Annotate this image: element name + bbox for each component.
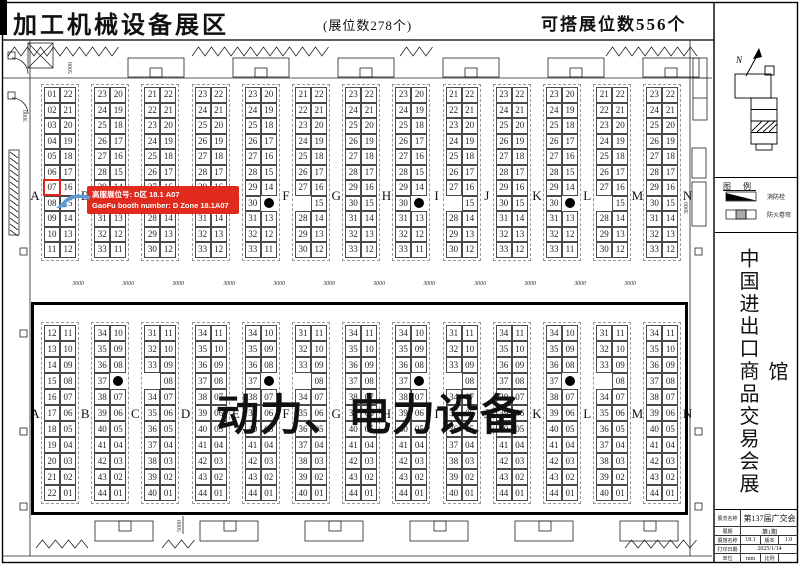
booth-cell[interactable]: 04 xyxy=(44,134,60,150)
booth-cell[interactable]: 11 xyxy=(44,242,60,258)
booth-cell[interactable]: 31 xyxy=(446,325,462,341)
booth-cell[interactable]: 37 xyxy=(596,437,612,453)
booth-cell[interactable]: 13 xyxy=(311,227,327,243)
booth-cell[interactable]: 43 xyxy=(646,469,662,485)
booth-cell[interactable]: 07 xyxy=(612,389,628,405)
booth-cell[interactable]: 36 xyxy=(596,421,612,437)
booth-cell[interactable]: 05 xyxy=(160,421,176,437)
booth-cell[interactable]: 35 xyxy=(395,341,411,357)
booth-cell[interactable]: 03 xyxy=(411,453,427,469)
booth-cell[interactable]: 02 xyxy=(44,103,60,119)
booth-cell[interactable]: 19 xyxy=(612,134,628,150)
booth-cell[interactable]: 44 xyxy=(195,485,211,501)
booth-cell[interactable]: 31 xyxy=(245,211,261,227)
booth-cell[interactable]: 23 xyxy=(195,87,211,103)
booth-cell[interactable]: 12 xyxy=(261,227,277,243)
booth-cell[interactable]: 16 xyxy=(44,389,60,405)
booth-cell[interactable]: 11 xyxy=(512,325,528,341)
booth-cell[interactable]: 19 xyxy=(211,134,227,150)
booth-cell[interactable]: 14 xyxy=(44,357,60,373)
booth-cell[interactable]: 12 xyxy=(311,242,327,258)
booth-cell[interactable]: 17 xyxy=(662,165,678,181)
booth-cell[interactable]: 19 xyxy=(160,134,176,150)
booth-cell[interactable]: 25 xyxy=(144,149,160,165)
booth-cell[interactable]: 06 xyxy=(110,405,126,421)
booth-cell[interactable]: 20 xyxy=(512,118,528,134)
booth-cell[interactable]: 14 xyxy=(462,211,478,227)
booth-cell[interactable]: 26 xyxy=(646,134,662,150)
booth-cell[interactable]: 24 xyxy=(646,103,662,119)
booth-cell[interactable]: 34 xyxy=(646,325,662,341)
booth-cell[interactable]: 03 xyxy=(60,453,76,469)
booth-cell[interactable]: 08 xyxy=(411,357,427,373)
booth-cell[interactable]: 16 xyxy=(512,180,528,196)
booth-cell[interactable]: 32 xyxy=(446,341,462,357)
booth-cell[interactable]: 39 xyxy=(144,469,160,485)
booth-cell[interactable]: 08 xyxy=(60,373,76,389)
booth-cell[interactable]: 31 xyxy=(496,211,512,227)
booth-cell[interactable]: 27 xyxy=(295,180,311,196)
booth-cell[interactable]: 23 xyxy=(295,118,311,134)
booth-cell[interactable]: 28 xyxy=(646,165,662,181)
booth-cell[interactable]: 12 xyxy=(662,242,678,258)
booth-cell[interactable]: 35 xyxy=(345,341,361,357)
booth-cell[interactable]: 02 xyxy=(110,469,126,485)
booth-cell[interactable]: 22 xyxy=(612,87,628,103)
booth-cell[interactable]: 34 xyxy=(94,325,110,341)
booth-cell[interactable]: 01 xyxy=(361,485,377,501)
booth-cell[interactable]: 33 xyxy=(596,357,612,373)
booth-cell[interactable]: 19 xyxy=(462,134,478,150)
booth-cell[interactable]: 25 xyxy=(295,149,311,165)
booth-cell[interactable]: 41 xyxy=(195,437,211,453)
booth-cell[interactable]: 31 xyxy=(144,325,160,341)
booth-cell[interactable]: 44 xyxy=(345,485,361,501)
booth-cell[interactable]: 22 xyxy=(462,87,478,103)
booth-cell[interactable]: 44 xyxy=(646,485,662,501)
booth-cell[interactable]: 36 xyxy=(345,357,361,373)
booth-cell[interactable]: 35 xyxy=(144,405,160,421)
booth-cell[interactable]: 04 xyxy=(60,437,76,453)
booth-cell[interactable]: 33 xyxy=(94,242,110,258)
booth-cell[interactable]: 05 xyxy=(110,421,126,437)
booth-cell[interactable]: 02 xyxy=(160,469,176,485)
booth-cell[interactable]: 19 xyxy=(361,134,377,150)
booth-cell[interactable]: 01 xyxy=(44,87,60,103)
booth-cell[interactable]: 36 xyxy=(195,357,211,373)
booth-cell[interactable]: 24 xyxy=(144,134,160,150)
booth-cell[interactable]: 35 xyxy=(596,405,612,421)
booth-cell[interactable]: 18 xyxy=(462,149,478,165)
booth-cell[interactable]: 19 xyxy=(562,103,578,119)
booth-cell[interactable]: 37 xyxy=(546,373,562,389)
booth-cell[interactable]: 09 xyxy=(411,341,427,357)
booth-cell[interactable]: 09 xyxy=(612,357,628,373)
booth-cell[interactable]: 34 xyxy=(195,325,211,341)
booth-cell[interactable]: 38 xyxy=(546,389,562,405)
booth-cell[interactable]: 02 xyxy=(462,469,478,485)
booth-cell[interactable]: 39 xyxy=(646,405,662,421)
booth-cell[interactable]: 20 xyxy=(662,118,678,134)
booth-cell[interactable]: 24 xyxy=(496,103,512,119)
booth-cell[interactable]: 27 xyxy=(195,149,211,165)
booth-cell[interactable]: 35 xyxy=(94,341,110,357)
booth-cell[interactable]: 10 xyxy=(44,227,60,243)
booth-cell[interactable]: 20 xyxy=(160,118,176,134)
booth-cell[interactable]: 44 xyxy=(245,485,261,501)
booth-cell[interactable]: 32 xyxy=(646,227,662,243)
booth-cell[interactable]: 25 xyxy=(195,118,211,134)
booth-cell[interactable]: 26 xyxy=(94,134,110,150)
booth-cell[interactable]: 29 xyxy=(144,227,160,243)
booth-cell[interactable]: 13 xyxy=(662,227,678,243)
booth-cell[interactable]: 11 xyxy=(110,242,126,258)
booth-cell[interactable]: 19 xyxy=(512,134,528,150)
booth-cell[interactable]: 14 xyxy=(512,211,528,227)
booth-cell[interactable]: 40 xyxy=(94,421,110,437)
booth-cell[interactable]: 34 xyxy=(245,325,261,341)
booth-cell[interactable]: 36 xyxy=(546,357,562,373)
booth-cell[interactable]: 16 xyxy=(311,180,327,196)
booth-cell[interactable]: 21 xyxy=(361,103,377,119)
booth-cell[interactable]: 17 xyxy=(361,165,377,181)
booth-cell[interactable]: 14 xyxy=(361,211,377,227)
booth-cell[interactable]: 23 xyxy=(446,118,462,134)
booth-cell[interactable]: 30 xyxy=(144,242,160,258)
booth-cell[interactable]: 39 xyxy=(295,469,311,485)
booth-cell[interactable]: 43 xyxy=(94,469,110,485)
booth-cell[interactable]: 10 xyxy=(211,341,227,357)
booth-cell[interactable]: 02 xyxy=(261,469,277,485)
booth-cell[interactable]: 29 xyxy=(596,227,612,243)
booth-cell[interactable]: 08 xyxy=(562,357,578,373)
booth-cell[interactable]: 10 xyxy=(512,341,528,357)
booth-cell[interactable]: 36 xyxy=(245,357,261,373)
booth-cell[interactable]: 01 xyxy=(462,485,478,501)
booth-cell[interactable]: 40 xyxy=(144,485,160,501)
booth-cell[interactable]: 26 xyxy=(395,134,411,150)
booth-cell[interactable]: 23 xyxy=(596,118,612,134)
booth-cell[interactable]: 18 xyxy=(311,149,327,165)
booth-cell[interactable]: 32 xyxy=(596,341,612,357)
booth-cell[interactable]: 41 xyxy=(94,437,110,453)
booth-cell[interactable]: 03 xyxy=(361,453,377,469)
booth-cell[interactable]: 40 xyxy=(546,421,562,437)
booth-cell[interactable]: 37 xyxy=(646,373,662,389)
booth-cell[interactable]: 22 xyxy=(211,87,227,103)
booth-cell[interactable]: 02 xyxy=(361,469,377,485)
booth-cell[interactable]: 12 xyxy=(160,242,176,258)
booth-cell[interactable]: 02 xyxy=(311,469,327,485)
booth-cell[interactable]: 20 xyxy=(311,118,327,134)
booth-cell[interactable]: 01 xyxy=(662,485,678,501)
booth-cell[interactable]: 18 xyxy=(60,149,76,165)
booth-cell[interactable]: 11 xyxy=(261,242,277,258)
booth-cell[interactable]: 29 xyxy=(295,227,311,243)
booth-cell[interactable]: 21 xyxy=(211,103,227,119)
booth-cell[interactable]: 31 xyxy=(395,211,411,227)
booth-cell[interactable]: 42 xyxy=(195,453,211,469)
booth-cell[interactable]: 26 xyxy=(195,134,211,150)
booth-cell[interactable]: 16 xyxy=(612,180,628,196)
booth-cell[interactable]: 38 xyxy=(195,389,211,405)
booth-cell[interactable]: 30 xyxy=(295,242,311,258)
booth-cell[interactable]: 42 xyxy=(646,453,662,469)
booth-cell[interactable]: 05 xyxy=(662,421,678,437)
booth-cell[interactable]: 24 xyxy=(195,103,211,119)
booth-cell[interactable]: 16 xyxy=(662,180,678,196)
booth-cell[interactable]: 23 xyxy=(395,87,411,103)
booth-cell[interactable]: 12 xyxy=(60,242,76,258)
booth-cell[interactable]: 13 xyxy=(562,211,578,227)
booth-cell[interactable]: 10 xyxy=(411,325,427,341)
booth-cell[interactable]: 34 xyxy=(144,389,160,405)
booth-cell[interactable]: 10 xyxy=(662,341,678,357)
booth-cell[interactable]: 04 xyxy=(612,437,628,453)
booth-cell[interactable]: 23 xyxy=(144,118,160,134)
booth-cell[interactable]: 08 xyxy=(110,357,126,373)
booth-cell[interactable]: 32 xyxy=(144,341,160,357)
booth-cell[interactable]: 36 xyxy=(395,357,411,373)
booth-cell[interactable]: 16 xyxy=(261,149,277,165)
booth-cell[interactable]: 26 xyxy=(596,165,612,181)
booth-cell[interactable]: 02 xyxy=(612,469,628,485)
booth-cell[interactable]: 38 xyxy=(144,453,160,469)
booth-cell[interactable]: 26 xyxy=(496,134,512,150)
booth-cell[interactable]: 32 xyxy=(245,227,261,243)
booth-cell[interactable]: 43 xyxy=(395,469,411,485)
booth-cell[interactable]: 15 xyxy=(361,196,377,212)
booth-cell[interactable]: 16 xyxy=(462,180,478,196)
booth-cell[interactable]: 26 xyxy=(245,134,261,150)
booth-cell[interactable]: 06 xyxy=(662,405,678,421)
booth-cell[interactable]: 03 xyxy=(110,453,126,469)
booth-cell[interactable]: 21 xyxy=(662,103,678,119)
booth-cell[interactable]: 32 xyxy=(395,227,411,243)
booth-cell[interactable]: 15 xyxy=(462,196,478,212)
booth-cell[interactable]: 16 xyxy=(411,149,427,165)
booth-cell[interactable]: 15 xyxy=(311,196,327,212)
booth-cell[interactable]: 16 xyxy=(361,180,377,196)
booth-cell[interactable]: 35 xyxy=(245,341,261,357)
booth-cell[interactable]: 13 xyxy=(211,227,227,243)
booth-cell[interactable]: 19 xyxy=(110,103,126,119)
booth-cell[interactable]: 08 xyxy=(612,373,628,389)
booth-cell[interactable]: 35 xyxy=(546,341,562,357)
booth-cell[interactable]: 18 xyxy=(662,149,678,165)
booth-cell[interactable]: 01 xyxy=(261,485,277,501)
booth-cell[interactable]: 25 xyxy=(345,118,361,134)
booth-cell[interactable]: 18 xyxy=(612,149,628,165)
booth-cell[interactable]: 25 xyxy=(496,118,512,134)
booth-cell[interactable]: 03 xyxy=(462,453,478,469)
booth-cell[interactable]: 27 xyxy=(245,149,261,165)
booth-cell[interactable]: 17 xyxy=(110,134,126,150)
booth-cell[interactable]: 09 xyxy=(110,341,126,357)
booth-cell[interactable]: 20 xyxy=(411,87,427,103)
booth-cell[interactable]: 43 xyxy=(245,469,261,485)
booth-cell[interactable]: 32 xyxy=(195,227,211,243)
booth-cell[interactable]: 04 xyxy=(160,437,176,453)
booth-cell[interactable]: 32 xyxy=(94,227,110,243)
booth-cell[interactable]: 22 xyxy=(60,87,76,103)
booth-cell[interactable]: 21 xyxy=(60,103,76,119)
booth-cell[interactable]: 33 xyxy=(395,242,411,258)
booth-cell[interactable]: 02 xyxy=(411,469,427,485)
booth-cell[interactable]: 20 xyxy=(261,87,277,103)
booth-cell[interactable]: 22 xyxy=(446,103,462,119)
booth-cell[interactable]: 17 xyxy=(462,165,478,181)
booth-cell[interactable]: 10 xyxy=(462,341,478,357)
booth-cell[interactable]: 09 xyxy=(562,341,578,357)
booth-cell[interactable]: 18 xyxy=(411,118,427,134)
booth-cell[interactable]: 03 xyxy=(512,453,528,469)
booth-cell[interactable]: 25 xyxy=(245,118,261,134)
booth-cell[interactable]: 24 xyxy=(245,103,261,119)
booth-cell[interactable]: 31 xyxy=(295,325,311,341)
booth-cell[interactable]: 06 xyxy=(60,405,76,421)
booth-cell[interactable]: 40 xyxy=(596,485,612,501)
booth-cell[interactable]: 18 xyxy=(110,118,126,134)
booth-cell[interactable]: 27 xyxy=(496,149,512,165)
booth-cell[interactable]: 38 xyxy=(596,453,612,469)
booth-cell[interactable]: 12 xyxy=(612,242,628,258)
booth-cell[interactable]: 12 xyxy=(462,242,478,258)
booth-cell[interactable]: 43 xyxy=(345,469,361,485)
booth-cell[interactable]: 23 xyxy=(345,87,361,103)
booth-cell[interactable]: 21 xyxy=(512,103,528,119)
booth-cell[interactable]: 27 xyxy=(94,149,110,165)
booth-cell[interactable]: 01 xyxy=(60,485,76,501)
booth-cell[interactable]: 36 xyxy=(94,357,110,373)
booth-cell[interactable]: 24 xyxy=(295,134,311,150)
booth-cell[interactable]: 28 xyxy=(295,211,311,227)
booth-cell[interactable]: 22 xyxy=(596,103,612,119)
booth-cell[interactable]: 41 xyxy=(646,437,662,453)
booth-cell[interactable]: 01 xyxy=(160,485,176,501)
booth-cell[interactable]: 37 xyxy=(144,437,160,453)
booth-cell[interactable]: 10 xyxy=(612,341,628,357)
booth-cell[interactable]: 33 xyxy=(646,242,662,258)
booth-cell[interactable]: 30 xyxy=(395,196,411,212)
booth-cell[interactable]: 10 xyxy=(361,341,377,357)
booth-cell[interactable]: 33 xyxy=(496,242,512,258)
booth-cell[interactable]: 17 xyxy=(211,165,227,181)
booth-cell[interactable]: 22 xyxy=(44,485,60,501)
booth-cell[interactable]: 18 xyxy=(361,149,377,165)
booth-cell[interactable]: 37 xyxy=(94,373,110,389)
booth-cell[interactable]: 11 xyxy=(60,325,76,341)
booth-cell[interactable]: 23 xyxy=(245,87,261,103)
booth-cell[interactable]: 03 xyxy=(612,453,628,469)
booth-cell[interactable]: 17 xyxy=(311,165,327,181)
booth-cell[interactable]: 08 xyxy=(261,357,277,373)
booth-cell[interactable]: 18 xyxy=(44,421,60,437)
booth-cell[interactable]: 24 xyxy=(345,103,361,119)
booth-cell[interactable]: 39 xyxy=(94,405,110,421)
booth-cell[interactable]: 13 xyxy=(361,227,377,243)
booth-cell[interactable]: 27 xyxy=(395,149,411,165)
booth-cell[interactable]: 10 xyxy=(311,341,327,357)
booth-cell[interactable]: 38 xyxy=(295,453,311,469)
booth-cell[interactable]: 31 xyxy=(546,211,562,227)
booth-cell[interactable]: 09 xyxy=(662,357,678,373)
booth-cell[interactable]: 08 xyxy=(662,373,678,389)
booth-cell[interactable]: 25 xyxy=(546,118,562,134)
booth-cell[interactable]: 31 xyxy=(596,325,612,341)
booth-cell[interactable]: 17 xyxy=(261,134,277,150)
booth-cell[interactable]: 11 xyxy=(662,325,678,341)
booth-cell[interactable]: 28 xyxy=(446,211,462,227)
booth-cell[interactable]: 25 xyxy=(446,149,462,165)
booth-cell[interactable]: 25 xyxy=(596,149,612,165)
booth-cell[interactable]: 14 xyxy=(311,211,327,227)
booth-cell[interactable]: 05 xyxy=(612,421,628,437)
booth-cell[interactable]: 05 xyxy=(60,421,76,437)
booth-cell[interactable]: 27 xyxy=(646,149,662,165)
booth-cell[interactable]: 29 xyxy=(395,180,411,196)
booth-cell[interactable]: 15 xyxy=(411,165,427,181)
booth-cell[interactable]: 28 xyxy=(94,165,110,181)
booth-cell[interactable]: 30 xyxy=(496,196,512,212)
booth-cell[interactable]: 13 xyxy=(462,227,478,243)
booth-cell[interactable]: 26 xyxy=(345,134,361,150)
booth-cell[interactable]: 21 xyxy=(446,87,462,103)
booth-cell[interactable]: 43 xyxy=(546,469,562,485)
booth-cell[interactable]: 03 xyxy=(311,453,327,469)
booth-cell[interactable]: 13 xyxy=(411,211,427,227)
booth-cell[interactable]: 38 xyxy=(446,453,462,469)
booth-cell[interactable]: 02 xyxy=(662,469,678,485)
booth-cell[interactable]: 30 xyxy=(646,196,662,212)
booth-cell[interactable]: 07 xyxy=(160,389,176,405)
booth-cell[interactable]: 21 xyxy=(596,87,612,103)
booth-cell[interactable]: 21 xyxy=(462,103,478,119)
booth-cell[interactable]: 14 xyxy=(562,180,578,196)
booth-cell[interactable]: 44 xyxy=(94,485,110,501)
booth-cell[interactable]: 08 xyxy=(160,373,176,389)
booth-cell[interactable]: 32 xyxy=(295,341,311,357)
booth-cell[interactable]: 29 xyxy=(446,227,462,243)
booth-cell[interactable]: 11 xyxy=(612,325,628,341)
booth-cell[interactable]: 34 xyxy=(496,325,512,341)
booth-cell[interactable]: 20 xyxy=(462,118,478,134)
booth-cell[interactable]: 30 xyxy=(345,196,361,212)
booth-cell[interactable]: 01 xyxy=(211,485,227,501)
booth-cell[interactable]: 05 xyxy=(562,421,578,437)
booth-cell[interactable]: 20 xyxy=(361,118,377,134)
booth-cell[interactable]: 24 xyxy=(395,103,411,119)
booth-cell[interactable]: 10 xyxy=(562,325,578,341)
booth-cell[interactable]: 33 xyxy=(345,242,361,258)
booth-cell[interactable]: 33 xyxy=(195,242,211,258)
booth-cell[interactable]: 18 xyxy=(261,118,277,134)
booth-cell[interactable]: 29 xyxy=(546,180,562,196)
booth-cell[interactable]: 21 xyxy=(295,87,311,103)
booth-cell[interactable]: 06 xyxy=(562,405,578,421)
booth-cell[interactable]: 31 xyxy=(345,211,361,227)
booth-cell[interactable]: 40 xyxy=(195,421,211,437)
booth-cell[interactable]: 32 xyxy=(546,227,562,243)
booth-cell[interactable]: 15 xyxy=(562,165,578,181)
booth-cell[interactable]: 27 xyxy=(596,180,612,196)
booth-cell[interactable]: 42 xyxy=(395,453,411,469)
booth-cell[interactable]: 40 xyxy=(646,421,662,437)
booth-cell[interactable]: 42 xyxy=(546,453,562,469)
booth-cell[interactable]: 43 xyxy=(195,469,211,485)
booth-cell[interactable]: 13 xyxy=(612,227,628,243)
booth-cell[interactable]: 40 xyxy=(295,485,311,501)
